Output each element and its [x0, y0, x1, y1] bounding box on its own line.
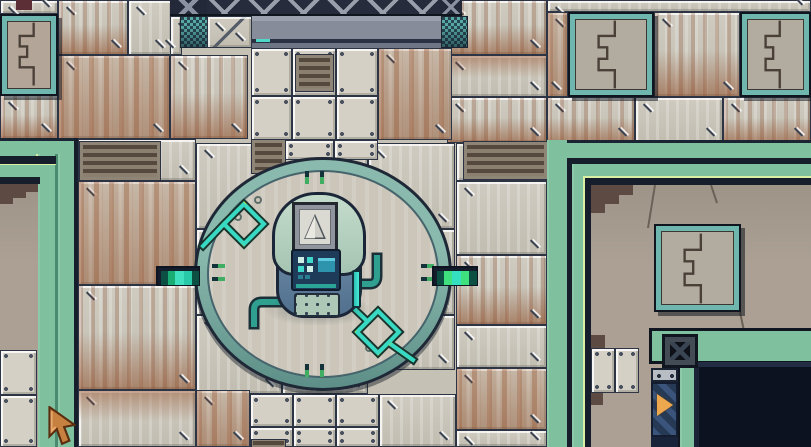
floor-tile	[456, 368, 547, 430]
diamond-lattice	[207, 0, 440, 16]
floor-plate	[334, 140, 378, 160]
robot-display	[292, 202, 338, 252]
left-coupler	[156, 266, 200, 286]
pit-opening[interactable]	[694, 362, 811, 447]
floor-plate	[336, 96, 378, 140]
robot-control-panel[interactable]	[291, 249, 341, 291]
platform-rivet	[365, 344, 373, 352]
platform-tick	[305, 171, 309, 184]
floor-tile	[196, 390, 250, 447]
wall-shadow	[16, 0, 32, 10]
wall-plate	[591, 348, 615, 393]
platform-tick	[320, 171, 324, 184]
puzzle-panel[interactable]	[740, 12, 811, 97]
platform-tick	[305, 364, 309, 377]
direction-sign	[651, 368, 678, 447]
floor-tile	[723, 97, 811, 143]
left-wall-ledge	[0, 138, 78, 447]
floor-tile	[456, 181, 547, 255]
robot-speaker-grill	[294, 293, 340, 317]
teal-dither-block	[180, 16, 208, 48]
floor-tile	[58, 0, 128, 55]
platform-tick	[212, 264, 225, 268]
lattice-tile	[170, 0, 207, 16]
right-coupler	[432, 266, 478, 286]
wall-plate	[0, 350, 37, 395]
floor-tile	[128, 0, 172, 55]
gem-block	[662, 334, 698, 368]
floor-plate	[293, 394, 336, 427]
floor-tile	[654, 12, 740, 97]
cursor-icon	[46, 406, 76, 447]
floor-plate	[336, 48, 378, 96]
pit-border	[677, 362, 694, 447]
platform-rivet	[234, 213, 242, 221]
wall-plate	[0, 395, 37, 447]
floor-plate	[336, 427, 379, 447]
floor-tile	[78, 390, 196, 447]
floor-tile	[170, 55, 248, 139]
floor-tile	[447, 55, 547, 97]
right-wall-ledge	[547, 140, 811, 447]
vent-grate	[252, 440, 285, 447]
floor-tile	[547, 12, 568, 97]
vent-grate	[80, 142, 160, 180]
floor-tile	[58, 55, 170, 139]
floor-plate	[251, 48, 292, 96]
lattice-tile	[440, 0, 462, 16]
floor-plate	[250, 394, 293, 427]
floor-tile	[635, 97, 723, 143]
platform-tick	[212, 277, 225, 281]
floor-tile	[456, 325, 547, 368]
wall-plate	[615, 348, 639, 393]
floor-tile	[547, 97, 635, 143]
floor-plate	[251, 96, 292, 140]
cracked-plate	[207, 16, 252, 48]
floor-tile	[547, 0, 811, 12]
platform-tick	[320, 364, 324, 377]
arrow-right-icon	[657, 394, 673, 416]
floor-plate	[293, 427, 336, 447]
floor-tile	[378, 48, 452, 140]
machine-door-top	[170, 0, 462, 48]
floor-tile	[447, 97, 547, 143]
robot-cyan-rod	[352, 270, 361, 308]
floor-tile	[78, 285, 196, 390]
vent-grate	[464, 142, 547, 179]
puzzle-panel[interactable]	[654, 224, 741, 312]
puzzle-panel[interactable]	[0, 14, 58, 96]
floor-tile	[0, 95, 58, 139]
floor-tile	[456, 430, 547, 447]
floor-tile	[379, 394, 456, 447]
panel-screen	[318, 258, 335, 272]
floor-plate	[292, 96, 336, 140]
platform-rivet	[254, 196, 262, 204]
floor-plate	[336, 394, 379, 427]
teal-dither-block	[441, 16, 468, 48]
machine-lintel	[252, 16, 442, 48]
puzzle-panel[interactable]	[568, 12, 654, 97]
vent-grate	[296, 55, 333, 91]
game-viewport[interactable]	[0, 0, 811, 447]
